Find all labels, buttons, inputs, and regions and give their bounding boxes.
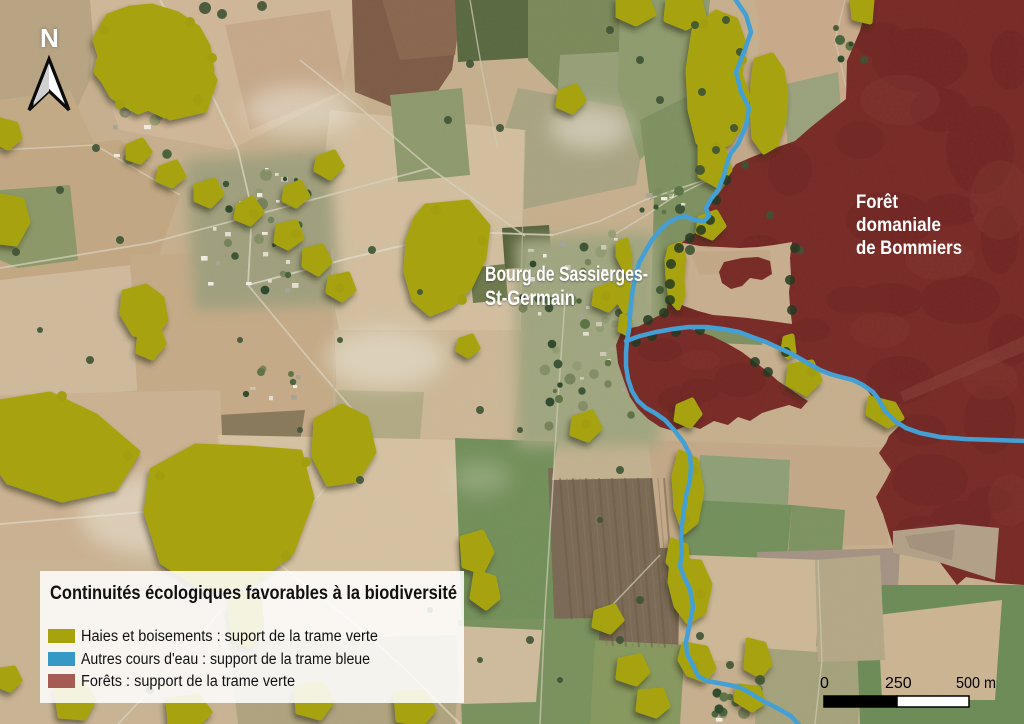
svg-text:de Bommiers: de Bommiers	[856, 238, 962, 259]
svg-text:Bourg de Sassierges-: Bourg de Sassierges-	[485, 263, 648, 286]
svg-text:domaniale: domaniale	[856, 215, 941, 236]
svg-text:Forêt: Forêt	[856, 192, 899, 213]
svg-text:Continuités écologiques favora: Continuités écologiques favorables à la …	[50, 583, 457, 604]
svg-text:N: N	[40, 23, 59, 53]
svg-text:Autres cours d'eau : support d: Autres cours d'eau : support de la trame…	[81, 651, 370, 668]
svg-text:500 m: 500 m	[956, 675, 996, 692]
svg-text:St-Germain: St-Germain	[485, 287, 575, 310]
svg-text:Forêts : support de la trame v: Forêts : support de la trame verte	[81, 673, 295, 690]
svg-text:0: 0	[820, 675, 829, 692]
svg-text:250: 250	[885, 675, 912, 692]
svg-text:Haies et boisements : suport d: Haies et boisements : suport de la trame…	[81, 628, 378, 645]
